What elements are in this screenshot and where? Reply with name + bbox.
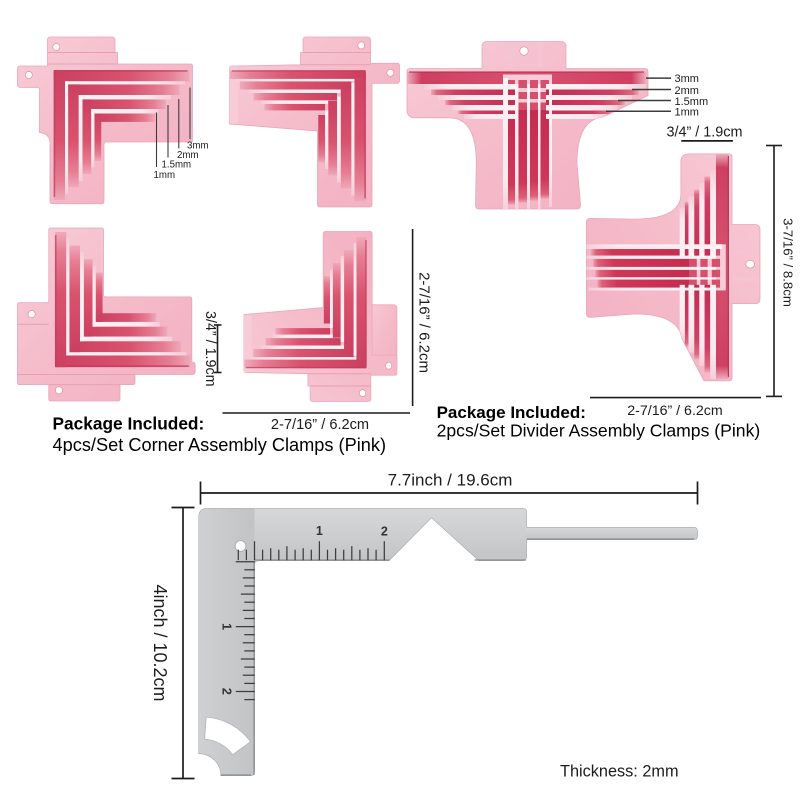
svg-text:2mm: 2mm xyxy=(177,150,199,161)
svg-text:4inch / 10.2cm: 4inch / 10.2cm xyxy=(150,584,170,701)
svg-text:1mm: 1mm xyxy=(675,106,699,118)
svg-text:3-7/16” / 8.8cm: 3-7/16” / 8.8cm xyxy=(781,218,796,307)
svg-text:1.5mm: 1.5mm xyxy=(162,160,192,171)
svg-text:Thickness: 2mm: Thickness: 2mm xyxy=(560,763,679,781)
svg-text:4pcs/Set Corner Assembly Clamp: 4pcs/Set Corner Assembly Clamps (Pink) xyxy=(53,435,387,455)
svg-text:2pcs/Set Divider Assembly Clam: 2pcs/Set Divider Assembly Clamps (Pink) xyxy=(437,421,761,441)
svg-text:1: 1 xyxy=(316,524,323,538)
svg-text:Package Included:: Package Included: xyxy=(53,414,205,434)
svg-text:3mm: 3mm xyxy=(675,73,699,85)
svg-text:2-7/16” / 6.2cm: 2-7/16” / 6.2cm xyxy=(271,417,369,433)
svg-text:2: 2 xyxy=(220,688,234,695)
svg-text:2-7/16” / 6.2cm: 2-7/16” / 6.2cm xyxy=(416,272,433,373)
svg-text:3/4” / 1.9cm: 3/4” / 1.9cm xyxy=(202,311,218,387)
svg-text:Package Included:: Package Included: xyxy=(437,403,586,422)
svg-text:1mm: 1mm xyxy=(154,170,176,181)
svg-text:3mm: 3mm xyxy=(187,141,209,152)
svg-text:7.7inch / 19.6cm: 7.7inch / 19.6cm xyxy=(388,471,513,490)
svg-text:3/4” / 1.9cm: 3/4” / 1.9cm xyxy=(667,124,743,140)
svg-text:2: 2 xyxy=(381,525,388,539)
svg-text:1: 1 xyxy=(220,623,234,630)
svg-text:2-7/16” / 6.2cm: 2-7/16” / 6.2cm xyxy=(627,403,722,419)
